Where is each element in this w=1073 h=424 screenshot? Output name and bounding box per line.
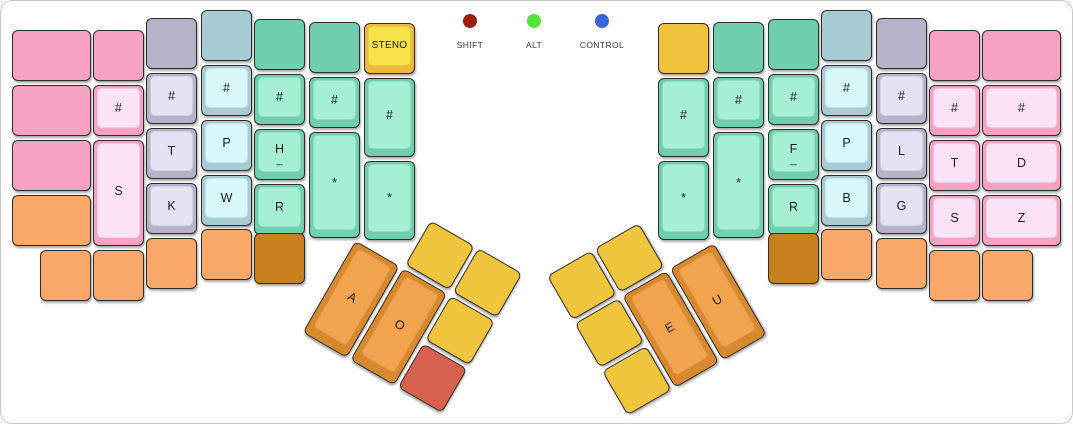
key-hash[interactable]: # [982,85,1061,136]
key-label: L [898,144,905,158]
keycap-surface: L [880,131,923,171]
key-hash[interactable]: # [876,73,927,124]
key-r[interactable]: R [768,184,819,235]
key-hash[interactable]: # [929,85,980,136]
keycap-surface: # [933,88,976,128]
key-z[interactable]: Z [982,195,1061,246]
key-label: S [950,211,958,225]
key-label: # [680,108,687,122]
key-label: B [842,191,850,205]
key-label: # [735,93,742,107]
key-t[interactable]: T [929,140,980,191]
key-blank[interactable] [876,18,927,69]
key-label: E [662,319,676,335]
keycap-surface: S [933,198,976,238]
keycap-surface: D [986,143,1057,183]
key-blank[interactable] [982,250,1033,301]
key-star[interactable]: * [713,132,764,238]
key-label: O [392,316,407,333]
keycap-surface: * [717,135,760,230]
key-blank[interactable] [768,233,819,284]
key-label: Z [1018,211,1026,225]
keycap-surface: G [880,186,923,226]
keycap-surface: F_ [772,132,815,172]
key-label: # [1018,101,1025,115]
key-blank[interactable] [821,10,872,61]
key-hash[interactable]: # [821,65,872,116]
key-blank[interactable] [713,22,764,73]
key-label: # [898,89,905,103]
key-b[interactable]: B [821,175,872,226]
keycap-surface: R [772,187,815,227]
keycap-surface: # [717,80,760,120]
keycap-surface: B [825,178,868,218]
key-hash[interactable]: # [658,78,709,157]
key-label: # [790,90,797,104]
keycap-surface: T [933,143,976,183]
key-blank[interactable] [821,229,872,280]
key-s[interactable]: S [929,195,980,246]
key-blank[interactable] [982,30,1061,81]
key-l[interactable]: L [876,128,927,179]
key-blank[interactable] [876,238,927,289]
key-label: G [897,199,907,213]
key-p[interactable]: P [821,120,872,171]
key-blank[interactable] [768,19,819,70]
keycap-surface: # [825,68,868,108]
key-label: # [951,101,958,115]
keycap-surface: # [880,76,923,116]
key-f[interactable]: F_ [768,129,819,180]
key-label: # [843,81,850,95]
key-label: R [789,200,798,214]
key-g[interactable]: G [876,183,927,234]
key-hash[interactable]: # [713,77,764,128]
steno-keyboard-visualizer: SHIFT ALT CONTROL #S#TK#PW#H_R#*STENO#* … [0,0,1073,424]
key-label: P [842,136,850,150]
key-sub-label: _ [790,158,796,163]
key-hash[interactable]: # [768,74,819,125]
key-label: A [345,289,359,305]
key-d[interactable]: D [982,140,1061,191]
key-blank[interactable] [658,23,709,74]
keycap-surface: # [772,77,815,117]
keycap-surface: Z [986,198,1057,238]
key-label: * [736,176,741,190]
key-label: U [710,291,725,308]
key-label: T [951,156,959,170]
right-hand-board: #*#*#F_R#PB#LG#TS#DZ [0,0,1073,424]
key-blank[interactable] [929,30,980,81]
keycap-surface: # [662,81,705,149]
keycap-surface: P [825,123,868,163]
key-label: D [1017,156,1026,170]
key-blank[interactable] [929,250,980,301]
keycap-surface: # [986,88,1057,128]
